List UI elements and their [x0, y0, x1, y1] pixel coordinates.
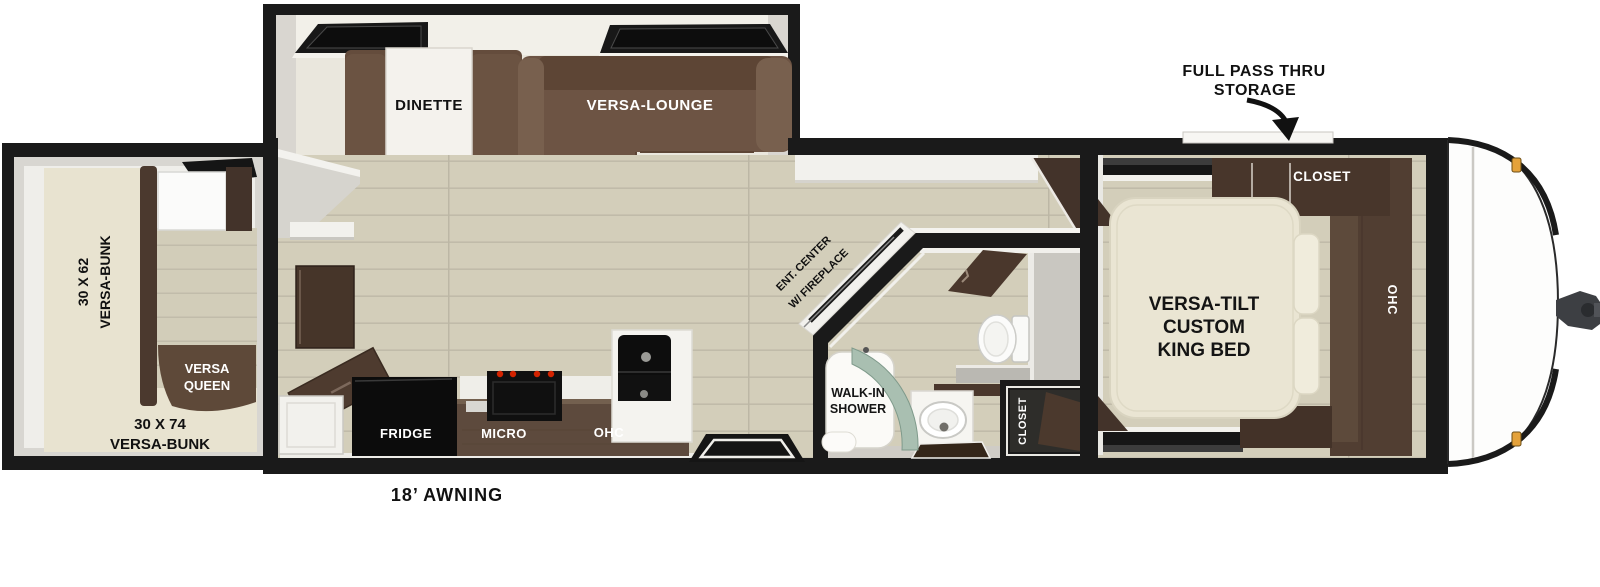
ohc-kitchen-label: OHC — [594, 425, 625, 440]
pillow-1 — [1294, 234, 1319, 314]
toilet — [978, 315, 1029, 363]
bathroom-closet-label: CLOSET — [1017, 397, 1029, 445]
king-bed: VERSA-TILT CUSTOM KING BED — [1110, 198, 1319, 418]
bath-mat — [912, 442, 990, 458]
versa-queen-label-1: VERSA — [185, 361, 230, 376]
rear-door-panel — [279, 396, 343, 454]
king-bed-label-3: KING BED — [1158, 340, 1251, 361]
awning-label: 18’ AWNING — [391, 485, 503, 505]
bedroom-wall — [1080, 138, 1098, 460]
shower-label-1: WALK-IN — [831, 386, 884, 400]
stove — [487, 371, 562, 421]
pass-thru-storage-hatch — [1183, 132, 1333, 143]
versa-queen-label-2: QUEEN — [184, 378, 230, 393]
front-cap — [1448, 140, 1600, 464]
bedroom-ohc-label: OHC — [1385, 285, 1399, 316]
bunk-30x74-name-label: VERSA-BUNK — [110, 436, 210, 453]
bunk-30x74-size-label: 30 X 74 — [134, 416, 186, 433]
tv-panel — [296, 266, 354, 348]
rv-floorplan: PANORAMIC WINDOWS DINETTE — [0, 0, 1600, 587]
clearance-light-bottom — [1512, 432, 1521, 446]
fridge: FRIDGE — [352, 377, 457, 456]
king-bed-label-2: CUSTOM — [1163, 317, 1245, 338]
pass-thru-label-2: STORAGE — [1214, 82, 1296, 99]
bathroom-partition — [1028, 253, 1083, 383]
entry-door — [689, 434, 805, 462]
bunk-30x62-name-label: VERSA-BUNK — [97, 235, 113, 328]
bathroom-top-wall — [905, 233, 1097, 248]
bunk-room: VERSA QUEEN 30 X 62 VERSA-BUNK 30 X 74 V… — [2, 143, 263, 470]
pillow-2 — [1294, 318, 1319, 394]
shower-label-2: SHOWER — [830, 402, 886, 416]
bedroom-closet-label: CLOSET — [1293, 169, 1351, 184]
fridge-label: FRIDGE — [380, 426, 432, 441]
annotation-pass-thru: FULL PASS THRU STORAGE — [1182, 63, 1325, 141]
dinette-label: DINETTE — [395, 97, 463, 114]
versa-lounge-label: VERSA-LOUNGE — [587, 97, 714, 114]
top-counter-band — [795, 155, 1038, 183]
hitch — [1556, 291, 1600, 330]
bunk-30x62-size-label: 30 X 62 — [75, 258, 91, 306]
clearance-light-top — [1512, 158, 1521, 172]
floorplan-canvas: PANORAMIC WINDOWS DINETTE — [0, 0, 1600, 587]
micro-label: MICRO — [481, 426, 527, 441]
wall-shelf — [290, 222, 354, 239]
slideout-window-right — [598, 24, 788, 58]
bunk-wardrobe — [158, 172, 226, 230]
king-bed-label-1: VERSA-TILT — [1149, 294, 1260, 315]
pass-thru-label-1: FULL PASS THRU — [1182, 63, 1325, 80]
bunk-divider — [140, 166, 157, 406]
